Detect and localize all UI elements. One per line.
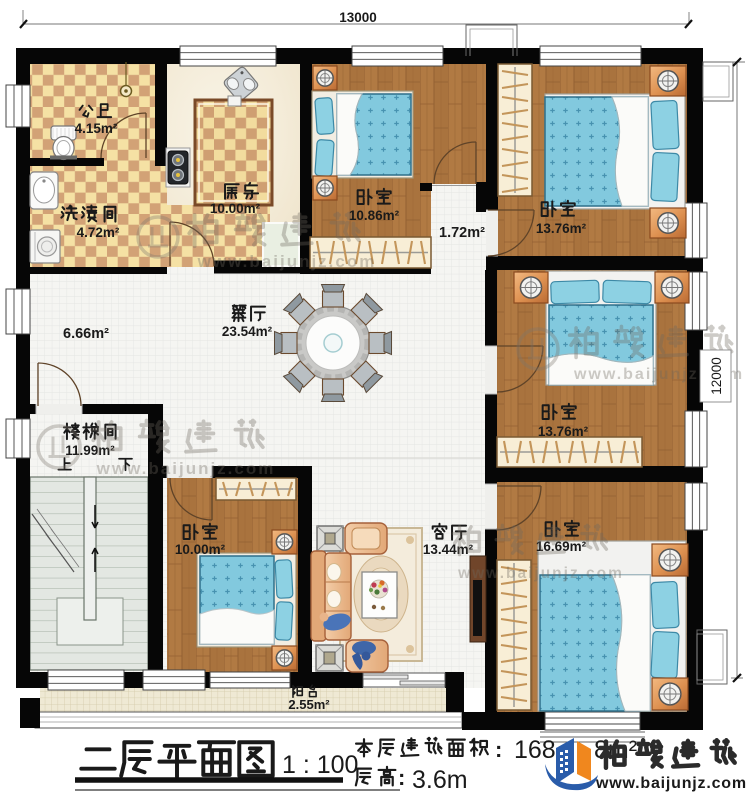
svg-text::: :	[495, 737, 502, 762]
svg-text:4.15m²: 4.15m²	[75, 121, 118, 136]
svg-text:www.baijunjz.com: www.baijunjz.com	[96, 459, 276, 478]
svg-text:6.66m²: 6.66m²	[63, 326, 109, 342]
svg-text:www.baijunjz.com: www.baijunjz.com	[595, 775, 747, 792]
svg-text::: :	[398, 765, 405, 790]
svg-text:www.baijunjz.com: www.baijunjz.com	[197, 252, 377, 271]
svg-text:10.00m²: 10.00m²	[210, 201, 261, 216]
svg-text:3.6m: 3.6m	[412, 766, 468, 794]
svg-text:10.00m²: 10.00m²	[175, 542, 226, 557]
svg-text:1.72m²: 1.72m²	[439, 225, 485, 241]
svg-text:4.72m²: 4.72m²	[77, 225, 120, 240]
svg-text:168: 168	[514, 736, 556, 764]
svg-text:12000: 12000	[709, 357, 724, 395]
svg-text:2.55m²: 2.55m²	[288, 697, 330, 712]
svg-text:10.86m²: 10.86m²	[349, 208, 400, 223]
svg-text:13.76m²: 13.76m²	[538, 424, 589, 439]
svg-text:13.44m²: 13.44m²	[423, 542, 474, 557]
svg-text:13.76m²: 13.76m²	[536, 221, 587, 236]
svg-text:23.54m²: 23.54m²	[222, 324, 273, 339]
svg-text:1 : 100: 1 : 100	[282, 751, 358, 779]
svg-text:13000: 13000	[339, 10, 377, 25]
svg-text:www.baijunjz.com: www.baijunjz.com	[457, 565, 624, 582]
